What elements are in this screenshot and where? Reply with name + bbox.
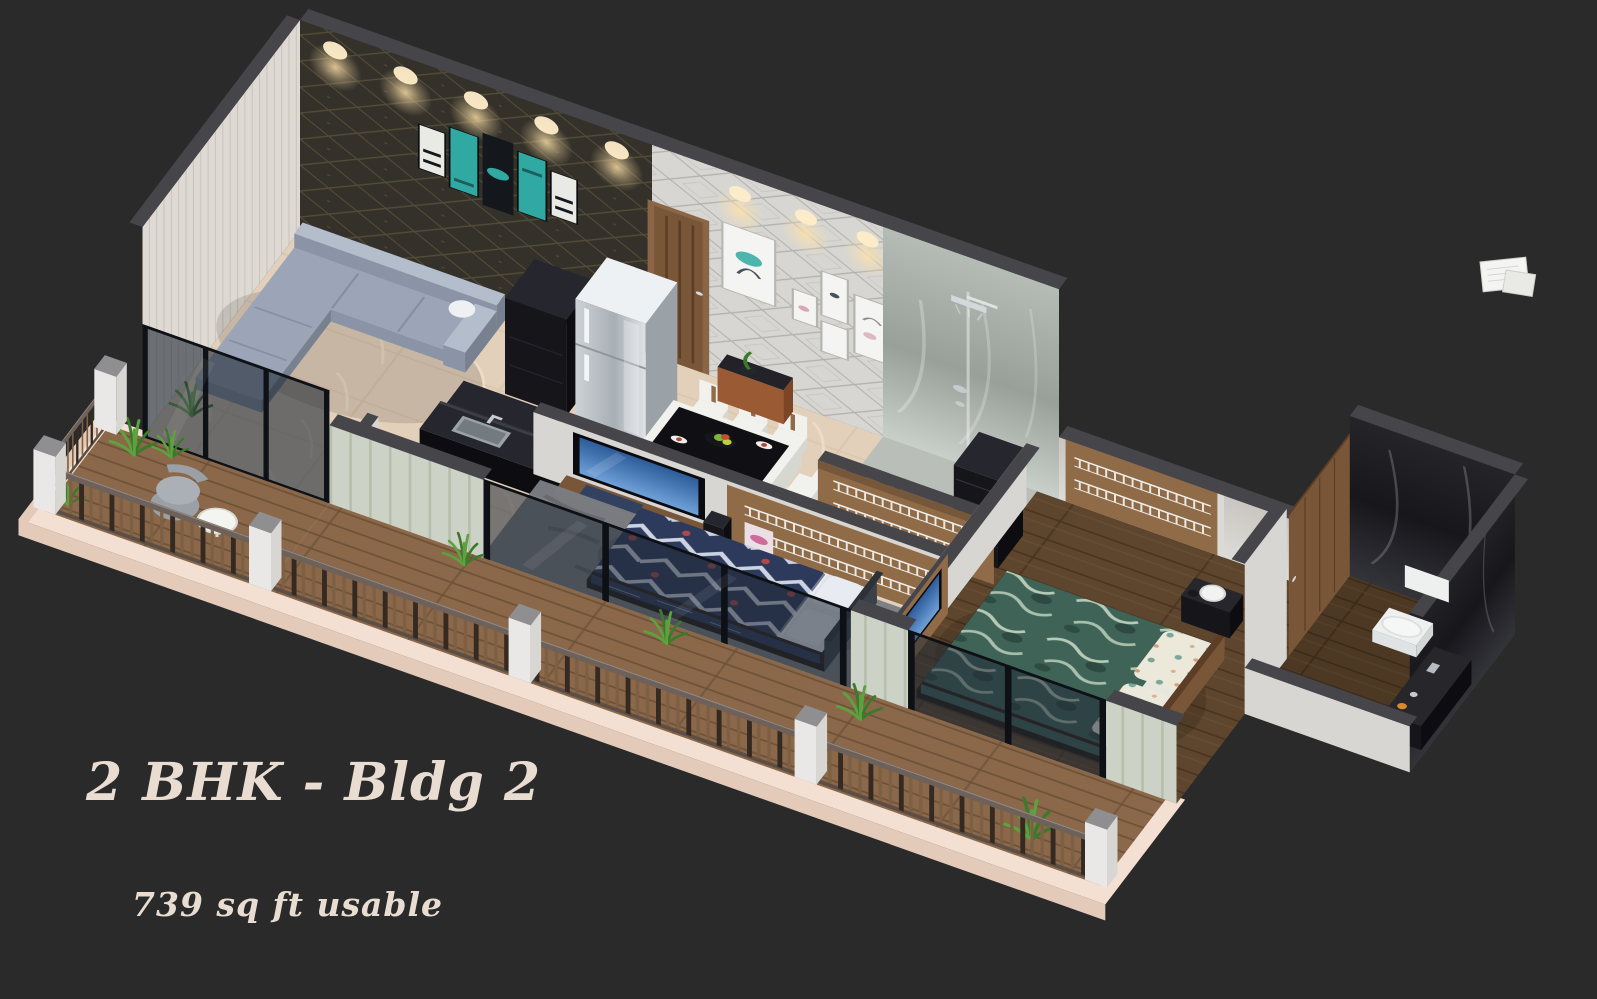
door-groove [1334,457,1335,593]
wardrobe1-rack-2-wire [828,536,830,544]
railing-post [838,748,843,790]
baluster [889,770,892,805]
glass-frame-post [908,630,915,710]
wardrobe1-rack-2-wire [811,552,813,560]
railing-post [960,791,965,833]
railing-post [170,511,175,553]
balcony-pier [795,719,817,785]
baluster [605,670,608,705]
railing-post [777,727,782,769]
wardrobe1-rack-2-wire [837,562,839,570]
door-groove [1319,477,1320,613]
baluster [363,584,366,619]
baluster [89,487,92,522]
baluster [970,799,973,834]
wardrobe2-rack-wire [1096,466,1098,474]
railing-post [292,555,297,597]
wardrobe1-rack-2-wire [793,546,795,554]
wardrobe2-divider [1217,493,1224,557]
render-layers [0,0,1597,999]
baluster [69,480,72,515]
baluster [302,562,305,597]
baluster [211,530,214,565]
paper-sheet [1503,270,1536,296]
railing-post [990,802,995,844]
wall-art-panel [551,171,577,224]
baluster [1030,820,1033,855]
baluster [848,756,851,791]
baluster [879,767,882,802]
wardrobe1-rack-2-wire [767,515,769,523]
wardrobe1-rack-2-wire [907,587,909,595]
railing-post [565,651,570,693]
balcony-pier [509,617,531,683]
wardrobe1-rack-wire [847,486,849,494]
wardrobe1-rack-wire [882,499,884,507]
baluster [980,803,983,838]
baluster [464,620,467,655]
wardrobe2-rack-wire [1114,473,1116,481]
baluster [646,684,649,719]
baluster [636,681,639,716]
fridge-highlight [624,320,639,435]
railing-post [383,587,388,629]
floorplan-canvas: 2 BHK - Bldg 2 739 sq ft usable [0,0,1597,999]
wardrobe1-rack-2-wire [872,552,874,560]
wardrobe1-rack-2-wire [899,561,901,569]
wardrobe1-rack-2-wire [758,512,760,520]
baluster [676,695,679,730]
fridge [584,308,589,344]
wardrobe1-rack-2-wire [811,530,813,538]
wardrobe1-rack-2-wire [819,555,821,563]
glass-frame-post [1100,698,1107,778]
balcony-pier-front [509,617,531,683]
baluster [757,724,760,759]
wardrobe2-rack-wire [1149,507,1151,515]
fridge-handle [584,308,589,344]
wardrobe1-rack-2-wire [855,568,857,576]
baluster [666,691,669,726]
railing-post [110,490,115,532]
baluster [707,706,710,741]
railing-post [626,673,631,715]
wardrobe1-rack-wire [891,502,893,510]
wardrobe1-rack-2-wire [881,555,883,563]
chair-back-strip [711,385,715,403]
wardrobe2-rack-wire [1132,501,1134,509]
railing-post [413,598,418,640]
baluster [1000,810,1003,845]
railing-post [717,705,722,747]
wardrobe1-rack-wire [943,521,945,529]
wardrobe2-rack-wire [1184,498,1186,506]
railing-post [1051,824,1056,866]
baluster [403,598,406,633]
baluster [858,759,861,794]
baluster [585,663,588,698]
wardrobe1-rack-wire [908,508,910,516]
glass-frame-post [264,368,269,482]
wardrobe1-rack-2-wire [846,565,848,573]
baluster [342,576,345,611]
wardrobe1-rack-wire [935,518,937,526]
baluster [241,541,244,576]
wardrobe2-rack-wire [1202,526,1204,534]
chair-back-strip [791,413,795,431]
baluster [494,630,497,665]
railing-post [595,662,600,704]
wardrobe1-rack-2-wire [881,577,883,585]
apartment-3d-floorplan: 2 BHK - Bldg 2 739 sq ft usable [0,0,1597,999]
wardrobe2-rack-wire [1114,495,1116,503]
fridge-handle [584,354,589,382]
fridge [624,320,639,435]
wardrobe1-rack-2-wire [802,527,804,535]
wardrobe1-rack-2-wire [846,543,848,551]
wardrobe2-rack-wire [1132,479,1134,487]
baluster [67,439,69,475]
wardrobe1-rack-wire [899,505,901,513]
wardrobe2-rack-wire [1105,469,1107,477]
baluster [120,498,123,533]
wardrobe1-rack-2-wire [890,558,892,566]
wardrobe2-rack-wire [1167,491,1169,499]
wardrobe1-rack-2-wire [916,568,918,576]
wardrobe2-rack-wire [1202,504,1204,512]
wall-art-panel [450,127,479,197]
baluster [616,673,619,708]
wardrobe2-rack-wire [1193,501,1195,509]
wardrobe1-rack-2-wire [907,565,909,573]
wardrobe1-rack-wire [917,511,919,519]
wardrobe1-rack-wire [838,483,840,491]
wardrobe2-rack-wire [1123,476,1125,484]
baluster [1010,813,1013,848]
balcony-pier-front [1085,822,1107,888]
baluster [82,420,84,456]
wardrobe1-rack-2-wire [784,521,786,529]
wardrobe1-rack-wire [952,524,954,532]
balcony-pier [33,449,55,515]
wardrobe1-rack-2-wire [837,540,839,548]
railing-post [231,533,236,575]
loose-paper [1503,270,1536,296]
railing-post [322,565,327,607]
baluster [575,659,578,694]
baluster [454,616,457,651]
baluster [696,702,699,737]
baluster [484,627,487,662]
balcony-pier-front [94,369,116,435]
balcony-pier [1085,822,1107,888]
wardrobe2-rack-wire [1158,510,1160,518]
railing-post [504,630,509,672]
baluster [767,727,770,762]
shower-glass-edge [967,291,970,467]
plan-area-label: 739 sq ft usable [132,885,443,924]
wardrobe2-rack-wire [1158,488,1160,496]
door-groove [678,220,681,359]
wardrobe1-rack-2-wire [793,524,795,532]
wardrobe1-rack-2-wire [828,558,830,566]
baluster [282,555,285,590]
wardrobe2-rack-wire [1184,520,1186,528]
wardrobe2-rack-wire [1167,513,1169,521]
glass-frame-post [143,325,148,439]
fridge [584,354,589,382]
baluster [545,648,548,683]
glass-frame-post [840,606,847,686]
railing-post [1020,813,1025,855]
baluster [727,713,730,748]
wardrobe2-rack-wire [1079,460,1081,468]
baluster [433,609,436,644]
glass-frame-post [324,389,329,503]
baluster [919,781,922,816]
wardrobe2-rack-wire [1123,498,1125,506]
baluster [160,512,163,547]
baluster [949,792,952,827]
door-groove [1304,496,1305,632]
balcony-pier-front [795,719,817,785]
baluster [221,533,224,568]
baluster [788,734,791,769]
glass-frame-post [602,522,609,602]
wardrobe1-rack-2-wire [775,518,777,526]
wardrobe1-rack-wire [873,496,875,504]
wardrobe1-rack-wire [855,490,857,498]
wall-art-panel [518,151,547,221]
wardrobe2-rack-wire [1193,523,1195,531]
plan-title: 2 BHK - Bldg 2 [85,752,541,813]
balcony-pier-front [33,449,55,515]
wardrobe1-rack-2-wire [749,508,751,516]
baluster [373,587,376,622]
wardrobe2-rack-wire [1176,516,1178,524]
wardrobe1-rack-2-wire [890,580,892,588]
baluster [1061,831,1064,866]
wardrobe2-rack-wire [1176,494,1178,502]
wardrobe1-rack-2-wire [863,571,865,579]
baluster [99,490,102,525]
railing-post [929,781,934,823]
balcony-pier [249,525,271,591]
baluster [312,566,315,601]
wardrobe2-rack-wire [1079,482,1081,490]
wardrobe1-rack-2-wire [802,549,804,557]
wardrobe2-rack-wire [1140,482,1142,490]
wardrobe1-rack-2-wire [819,533,821,541]
railing-post [443,608,448,650]
railing-post [201,522,206,564]
railing-post [79,479,84,521]
wardrobe2-rack-wire [1096,488,1098,496]
baluster [393,594,396,629]
railing-post [140,501,145,543]
baluster [130,501,133,536]
baluster [828,749,831,784]
wardrobe1-rack-2-wire [899,583,901,591]
wardrobe2-rack-wire [1088,485,1090,493]
balcony-pier-front [249,525,271,591]
wardrobe1-rack-wire [926,514,928,522]
chair [711,385,715,403]
glass-frame-post [1005,665,1012,745]
baluster [1071,835,1074,870]
railing-post [686,694,691,736]
railing-post [747,716,752,758]
baluster [939,788,942,823]
wardrobe2-rack-wire [1105,491,1107,499]
railing-post [869,759,874,801]
door-groove [692,225,695,364]
baluster [909,777,912,812]
railing-post [656,684,661,726]
baluster [190,523,193,558]
baluster [423,605,426,640]
framed-art-small [854,295,885,364]
wall-art-panel [419,124,445,177]
wardrobe2-rack-wire [1149,485,1151,493]
baluster [180,519,183,554]
baluster [555,652,558,687]
wardrobe1-rack-2-wire [775,540,777,548]
wardrobe1-rack-2-wire [784,543,786,551]
wardrobe2-rack-wire [1140,504,1142,512]
baluster [332,573,335,608]
baluster [1041,824,1044,859]
baluster [150,508,153,543]
railing-post [474,619,479,661]
railing-post [899,770,904,812]
baluster [737,716,740,751]
wardrobe1-rack-2-wire [863,549,865,557]
baluster [72,432,74,468]
wardrobe1-rack-2-wire [855,546,857,554]
wardrobe1-rack-wire [864,493,866,501]
railing-post [352,576,357,618]
balcony-pier [94,369,116,435]
glass-frame-post [484,480,491,560]
baluster [87,413,89,449]
wardrobe2-rack-wire [1088,463,1090,471]
chair [791,413,795,431]
